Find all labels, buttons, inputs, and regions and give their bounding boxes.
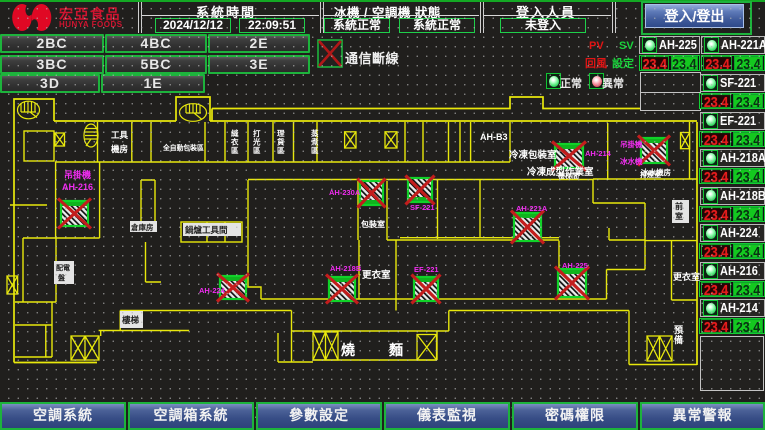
- svg-text:工具: 工具: [111, 130, 129, 140]
- svg-text:AH-230A: AH-230A: [329, 188, 361, 197]
- svg-text:冷凍包裝室: 冷凍包裝室: [509, 149, 557, 161]
- svg-text:蒸煮區: 蒸煮區: [310, 128, 319, 155]
- svg-text:麵: 麵: [388, 342, 403, 358]
- svg-text:AH-225: AH-225: [562, 261, 588, 270]
- svg-text:排煙室: 排煙室: [640, 170, 661, 179]
- svg-text:機房: 機房: [111, 144, 128, 154]
- svg-text:AH-216: AH-216: [62, 182, 93, 192]
- svg-text:吊掛機: 吊掛機: [620, 139, 643, 149]
- svg-text:盤: 盤: [57, 273, 66, 282]
- svg-text:全自動包裝區: 全自動包裝區: [162, 143, 204, 152]
- svg-text:AH-221A: AH-221A: [516, 204, 548, 213]
- svg-text:包裝室: 包裝室: [360, 219, 385, 229]
- svg-text:冰水機: 冰水機: [620, 156, 643, 166]
- svg-text:AH-214: AH-214: [585, 149, 612, 158]
- svg-text:縫衣區: 縫衣區: [231, 128, 239, 155]
- svg-text:EF-221: EF-221: [414, 265, 439, 274]
- svg-text:SF-221: SF-221: [410, 203, 435, 212]
- svg-text:更衣室: 更衣室: [362, 269, 391, 281]
- svg-text:理貨區: 理貨區: [277, 129, 285, 155]
- svg-text:更衣室: 更衣室: [673, 271, 700, 282]
- svg-text:室: 室: [675, 211, 683, 221]
- svg-text:吊掛機: 吊掛機: [64, 169, 91, 180]
- svg-text:燒: 燒: [341, 342, 355, 358]
- svg-text:樓梯間: 樓梯間: [558, 171, 579, 180]
- svg-text:前: 前: [675, 201, 683, 211]
- svg-text:配電: 配電: [56, 263, 70, 272]
- svg-text:鍋爐工具間: 鍋爐工具間: [185, 225, 228, 235]
- svg-text:樓梯: 樓梯: [122, 315, 140, 325]
- svg-text:倉庫房: 倉庫房: [130, 222, 154, 232]
- svg-text:AH-224: AH-224: [199, 286, 226, 295]
- svg-text:AH-B3: AH-B3: [480, 132, 508, 142]
- svg-text:打光區: 打光區: [252, 128, 261, 155]
- svg-text:預備: 預備: [674, 325, 684, 345]
- svg-text:AH-218B: AH-218B: [330, 264, 362, 273]
